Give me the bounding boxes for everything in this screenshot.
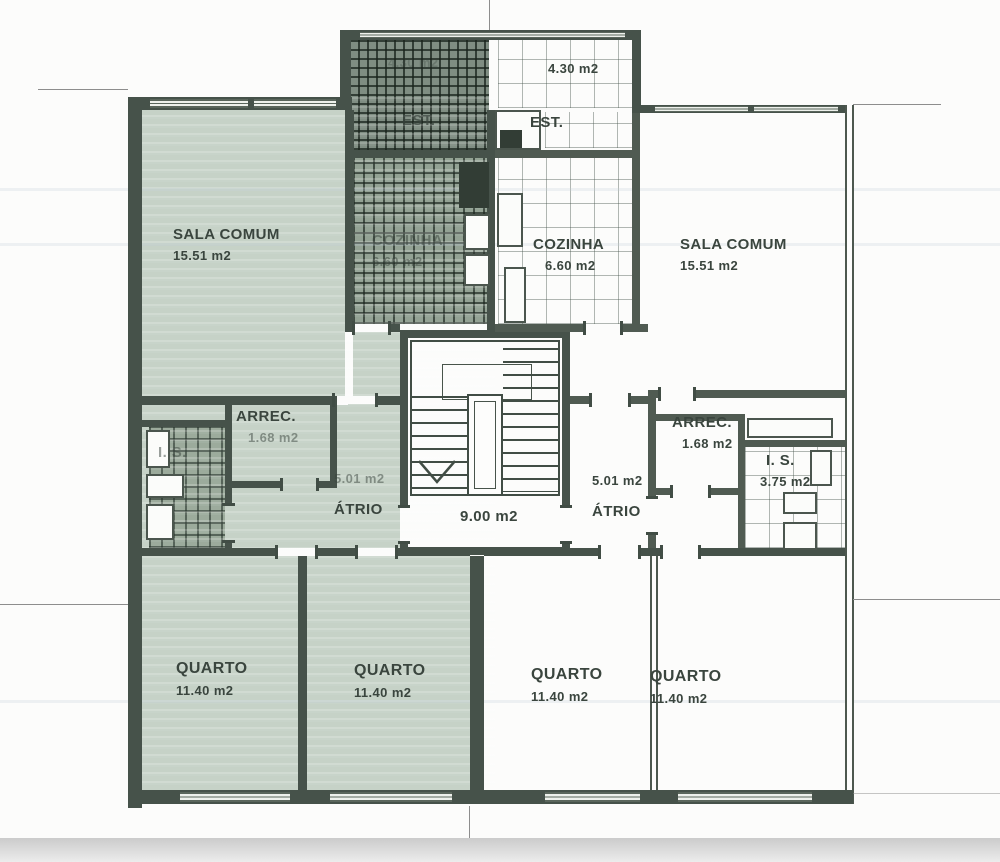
label-est-left: EST. [402, 112, 435, 129]
wall-segment [648, 396, 656, 498]
wall-segment [225, 481, 282, 488]
label-arrec-right: ARREC. 1.68 m2 [672, 414, 733, 452]
label-atrio-right: 5.01 m2 ÁTRIO [592, 474, 643, 520]
label-est-right: EST. [530, 114, 563, 131]
label-cozinha-right: COZINHA 6.60 m2 [533, 236, 604, 274]
reference-line [0, 604, 128, 605]
wall-segment [845, 105, 854, 804]
door-jamb [280, 478, 283, 491]
wall-segment [340, 30, 351, 110]
label-quarto-left-1: QUARTO 11.40 m2 [176, 660, 247, 699]
label-est-right-area: 4.30 m2 [548, 62, 599, 77]
window [150, 99, 248, 108]
wall-segment [632, 113, 640, 332]
door-jamb [658, 387, 661, 401]
reference-line [469, 806, 470, 838]
door-jamb [638, 545, 641, 559]
stairs-direction-arrow [415, 458, 459, 486]
label-is-left: I. S. [158, 444, 187, 461]
label-quarto-right-1: QUARTO 11.40 m2 [531, 666, 602, 705]
bathroom-fixture [783, 492, 817, 514]
reference-line [489, 0, 490, 30]
door-jamb [315, 545, 318, 559]
wall-segment [375, 396, 400, 405]
duct-shaft [500, 130, 522, 148]
door-jamb [222, 540, 235, 543]
wall-segment [630, 396, 648, 404]
window [655, 106, 748, 112]
door-jamb [583, 321, 586, 335]
door-jamb [398, 541, 410, 544]
wall-segment [495, 150, 632, 158]
wall-segment [400, 330, 408, 508]
label-quarto-left-2: QUARTO 11.40 m2 [354, 662, 425, 701]
door-jamb [395, 545, 398, 559]
scan-shadow [0, 838, 1000, 862]
kitchen-appliance [459, 162, 489, 208]
door-jamb [275, 545, 278, 559]
apartment-left-highlight [353, 332, 400, 396]
door-jamb [375, 393, 378, 407]
wall-segment [345, 150, 487, 158]
door-jamb [589, 393, 592, 407]
wall-segment [640, 548, 662, 556]
reference-line [853, 793, 1000, 794]
wall-segment [470, 556, 484, 790]
window [330, 792, 452, 802]
door-jamb [698, 545, 701, 559]
door-jamb [598, 545, 601, 559]
wall-segment [142, 396, 335, 405]
door-jamb [693, 387, 696, 401]
reference-line [853, 599, 1000, 600]
door-jamb [332, 393, 335, 407]
label-sala-comum-left: SALA COMUM 15.51 m2 [173, 226, 280, 264]
reference-line [853, 104, 941, 105]
bathroom-fixture [146, 474, 184, 498]
kitchen-counter [464, 214, 490, 250]
window [254, 99, 336, 108]
wall-segment [738, 414, 745, 555]
label-arrec-left: ARREC. 1.68 m2 [236, 408, 299, 446]
door-jamb [628, 393, 631, 407]
label-is-right: I. S. 3.75 m2 [760, 452, 811, 490]
wall-segment [700, 548, 845, 556]
wall-segment [695, 390, 845, 398]
door-jamb [560, 505, 572, 508]
kitchen-counter [497, 193, 523, 247]
label-stairs-area: 9.00 m2 [460, 508, 518, 525]
kitchen-counter [464, 254, 490, 286]
bathroom-fixture [783, 522, 817, 550]
wall-segment [562, 330, 570, 508]
wall-segment [315, 548, 358, 556]
label-est-left-area: 4.30 m2 [388, 56, 439, 71]
door-jamb [560, 541, 572, 544]
window [360, 32, 625, 38]
wall-segment [710, 488, 745, 495]
closet [747, 418, 833, 438]
wall-segment [484, 548, 600, 556]
door-jamb [355, 545, 358, 559]
wall-segment [128, 97, 142, 808]
bathroom-fixture [146, 504, 174, 540]
door-jamb [670, 485, 673, 498]
wall-segment [142, 548, 278, 556]
window [678, 792, 812, 802]
wall-segment [495, 324, 585, 332]
label-cozinha-left: COZINHA 6.60 m2 [372, 232, 443, 270]
reference-line [38, 89, 128, 90]
door-jamb [708, 485, 711, 498]
door-jamb [222, 503, 235, 506]
window [754, 106, 838, 112]
stair-flight-inner [474, 401, 496, 489]
window [545, 792, 640, 802]
door-jamb [316, 478, 319, 491]
wall-segment [298, 556, 307, 790]
door-jamb [620, 321, 623, 335]
kitchen-counter [504, 267, 526, 323]
label-sala-comum-right: SALA COMUM 15.51 m2 [680, 236, 787, 274]
wall-segment [390, 324, 400, 332]
bathroom-fixture [810, 450, 832, 486]
wall-segment [225, 420, 232, 505]
stair-steps-right [503, 348, 559, 492]
wall-segment [622, 324, 648, 332]
wall-segment [745, 440, 845, 447]
label-atrio-left: 5.01 m2 ÁTRIO [334, 472, 385, 518]
wall-segment [345, 110, 354, 332]
door-jamb [660, 545, 663, 559]
wall-segment [632, 30, 641, 113]
door-jamb [388, 321, 391, 335]
door-jamb [398, 505, 410, 508]
floor-plan: SALA COMUM 15.51 m2 COZINHA 6.60 m2 4.30… [0, 0, 1000, 862]
door-jamb [352, 321, 355, 335]
door-jamb [646, 532, 658, 535]
wall-segment [142, 420, 232, 427]
window [180, 792, 290, 802]
label-quarto-right-2: QUARTO 11.40 m2 [650, 668, 721, 707]
door-jamb [646, 496, 658, 499]
